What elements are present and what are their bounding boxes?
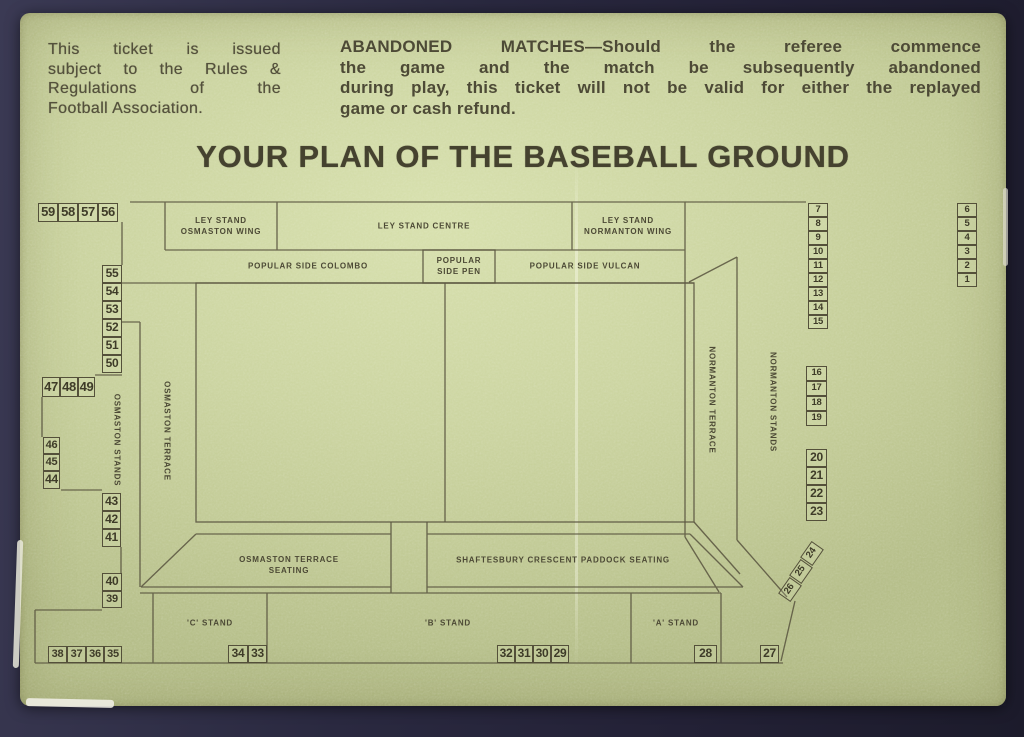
seat-block-4: 4 (957, 231, 977, 245)
seat-block-20: 20 (806, 449, 827, 467)
label-ley-stand-normanton-wing: LEY STAND NORMANTON WING (584, 216, 672, 238)
seat-block-49: 49 (78, 377, 95, 397)
seat-block-10: 10 (808, 245, 828, 259)
seat-block-6: 6 (957, 203, 977, 217)
seat-block-57: 57 (78, 203, 98, 222)
stadium-outline (0, 0, 1024, 737)
seat-block-35: 35 (104, 646, 122, 663)
stadium-plan: 5958575655545352515047484946454443424140… (0, 0, 1024, 737)
seat-block-8: 8 (808, 217, 828, 231)
seat-block-21: 21 (806, 467, 827, 485)
seat-block-15: 15 (808, 315, 828, 329)
seat-block-31: 31 (515, 645, 533, 663)
seat-block-14: 14 (808, 301, 828, 315)
seat-block-52: 52 (102, 319, 122, 337)
seat-block-27: 27 (760, 645, 779, 663)
label-popular-side-vulcan: POPULAR SIDE VULCAN (530, 262, 641, 273)
seat-block-58: 58 (58, 203, 78, 222)
seat-block-48: 48 (60, 377, 78, 397)
seat-block-56: 56 (98, 203, 118, 222)
label-a-stand: 'A' STAND (653, 619, 699, 630)
seat-block-28: 28 (694, 645, 717, 663)
seat-block-38: 38 (48, 646, 67, 663)
seat-block-44: 44 (43, 471, 60, 489)
seat-block-5: 5 (957, 217, 977, 231)
label-osmaston-stands: OSMASTON STANDS (111, 394, 122, 487)
label-ley-stand-centre: LEY STAND CENTRE (378, 222, 471, 233)
ticket-edge-highlight (1003, 188, 1008, 266)
seat-block-16: 16 (806, 366, 827, 381)
seat-block-22: 22 (806, 485, 827, 503)
seat-block-37: 37 (67, 646, 86, 663)
label-ley-stand-osmaston-wing: LEY STAND OSMASTON WING (181, 216, 261, 238)
seat-block-51: 51 (102, 337, 122, 355)
seat-block-11: 11 (808, 259, 828, 273)
label-osmaston-terrace-seating: OSMASTON TERRACE SEATING (239, 555, 339, 577)
label-normanton-terrace: NORMANTON TERRACE (706, 346, 717, 453)
seat-block-34: 34 (228, 645, 248, 663)
seat-block-19: 19 (806, 411, 827, 426)
seat-block-36: 36 (86, 646, 104, 663)
seat-block-41: 41 (102, 529, 121, 547)
seat-block-54: 54 (102, 283, 122, 301)
seat-block-30: 30 (533, 645, 551, 663)
seat-block-42: 42 (102, 511, 121, 529)
seat-block-47: 47 (42, 377, 60, 397)
label-popular-side-pen: POPULAR SIDE PEN (437, 256, 482, 278)
label-shaftesbury-crescent-paddock-seating: SHAFTESBURY CRESCENT PADDOCK SEATING (456, 556, 670, 567)
label-popular-side-colombo: POPULAR SIDE COLOMBO (248, 262, 368, 273)
seat-block-13: 13 (808, 287, 828, 301)
seat-block-3: 3 (957, 245, 977, 259)
seat-block-53: 53 (102, 301, 122, 319)
seat-block-29: 29 (551, 645, 569, 663)
seat-block-59: 59 (38, 203, 58, 222)
seat-block-9: 9 (808, 231, 828, 245)
seat-block-33: 33 (248, 645, 267, 663)
seat-block-55: 55 (102, 265, 122, 283)
label-c-stand: 'C' STAND (187, 619, 233, 630)
seat-block-1: 1 (957, 273, 977, 287)
label-osmaston-terrace: OSMASTON TERRACE (161, 381, 172, 481)
label-normanton-stands: NORMANTON STANDS (767, 352, 778, 452)
seat-block-39: 39 (102, 591, 122, 608)
seat-block-32: 32 (497, 645, 515, 663)
seat-block-23: 23 (806, 503, 827, 521)
seat-block-17: 17 (806, 381, 827, 396)
seat-block-50: 50 (102, 355, 122, 373)
seat-block-2: 2 (957, 259, 977, 273)
label-b-stand: 'B' STAND (425, 619, 471, 630)
seat-block-7: 7 (808, 203, 828, 217)
seat-block-46: 46 (43, 437, 60, 454)
seat-block-18: 18 (806, 396, 827, 411)
ticket-photo: This ticket is issued subject to the Rul… (0, 0, 1024, 737)
seat-block-40: 40 (102, 573, 122, 591)
seat-block-45: 45 (43, 454, 60, 471)
seat-block-12: 12 (808, 273, 828, 287)
seat-block-43: 43 (102, 493, 121, 511)
